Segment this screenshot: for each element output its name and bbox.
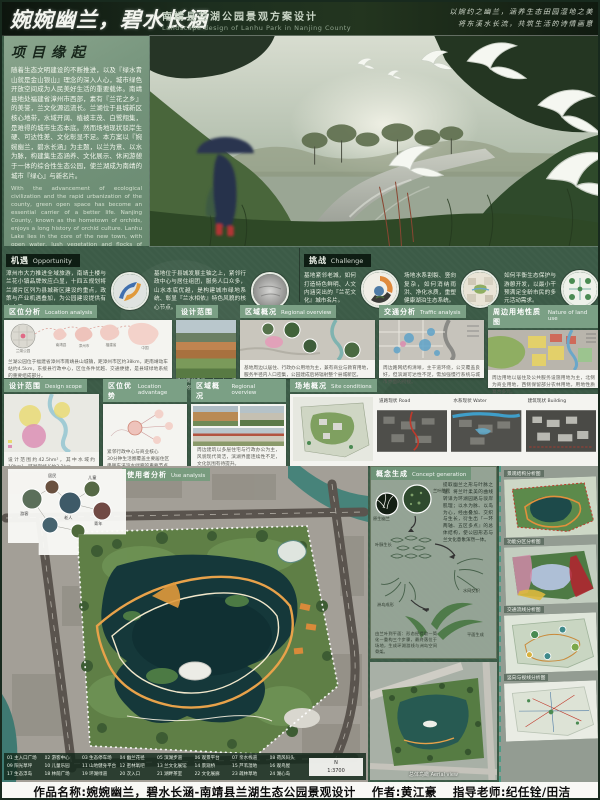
panel-header-scope: 设计范围 bbox=[176, 305, 218, 318]
legend-item: 20 次入口 bbox=[120, 771, 156, 779]
traffic-map bbox=[379, 320, 484, 360]
southeast-plaza bbox=[284, 708, 320, 728]
master-plan-legend: 01 主入口广场 02 游客中心 03 生态停车场 04 幽兰花径 05 滨湖步… bbox=[4, 753, 366, 780]
landuse-map bbox=[488, 330, 599, 370]
legend-item: 05 滨湖步道 bbox=[157, 755, 193, 763]
header-en: Site conditions bbox=[331, 384, 372, 390]
concept-header: 概念生成 Concept generation bbox=[371, 467, 471, 480]
site-plan-green bbox=[293, 397, 373, 461]
panel-header-regional2: 区域概况 Regional overview bbox=[191, 379, 286, 402]
concept-generation-panel: 概念生成 Concept generation bbox=[370, 466, 497, 659]
challenge-label-cn: 挑战 bbox=[309, 256, 327, 265]
traffic-map-panel: 周边路网结构清晰，主干道环绕，公交覆盖良好，但滨湖可达性不足，需加强慢行系统与城… bbox=[379, 320, 484, 378]
header-en: Nature of land use bbox=[548, 310, 594, 322]
concept-note: 由兰叶到平面：形态经提取—简化—重构三个步骤，最终落位于场地，生成环湖游线与洲岛… bbox=[375, 631, 437, 655]
advantage-diagram bbox=[105, 406, 185, 446]
legend-item: 22 文化展廊 bbox=[195, 771, 231, 779]
site-map-building-img bbox=[526, 405, 596, 457]
use-analysis-cn: 使用者分析 bbox=[127, 470, 167, 480]
header-cn: 交通分析 bbox=[384, 307, 416, 317]
origin-paragraph-english: With the advancement of ecological civil… bbox=[11, 186, 142, 246]
panel-location-advantage: 区位优势 Location advantage 紧邻行政中心与商业核心 30分钟… bbox=[103, 379, 187, 476]
photo-plaza bbox=[193, 428, 284, 446]
svg-text:水网交织: 水网交织 bbox=[463, 587, 480, 594]
scale-value: 1:3700 bbox=[311, 767, 361, 775]
opportunity-label-cn: 机遇 bbox=[11, 256, 29, 265]
motto-line-1: 以婉约之幽兰，涵养生态田园湿地之美 bbox=[450, 7, 595, 19]
legend-item: 03 生态停车场 bbox=[82, 755, 118, 763]
aerial-render-panel: 总体鸟瞰 Aerial view bbox=[370, 662, 497, 780]
svg-text:居民: 居民 bbox=[48, 473, 56, 479]
regional-map-panel: 基地周边以居住、行政办公用地为主，兼有商业与教育用地，服务半径内人口密集，公园建… bbox=[240, 320, 375, 378]
panel-site-conditions: 场地概况 Site conditions 道路现状 Road 水系现状 W bbox=[290, 379, 599, 466]
node-lanhu: 兰湖公园 bbox=[16, 348, 31, 353]
advantage-line-1: 紧邻行政中心与商业核心 bbox=[105, 450, 185, 457]
poster-motto: 以婉约之幽兰，涵养生态田园湿地之美 将东溪水长流，共筑生活的诗情画意 bbox=[450, 7, 595, 31]
challenge-icon-water bbox=[461, 270, 499, 308]
concept-header-en: Concept generation bbox=[412, 472, 466, 478]
challenge-icon-ecology bbox=[561, 270, 599, 308]
plan-zoning-map bbox=[504, 544, 598, 605]
scope-photo bbox=[176, 320, 236, 378]
legend-item: 01 主入口广场 bbox=[7, 755, 43, 763]
render-caption-en: Aerial view bbox=[431, 772, 458, 778]
panel-header-traffic: 交通分析 Traffic analysis bbox=[379, 305, 466, 318]
svg-text:平面生成: 平面生成 bbox=[467, 631, 484, 638]
svg-text:青年: 青年 bbox=[94, 520, 102, 527]
svg-text:中国: 中国 bbox=[141, 345, 149, 350]
north-pond bbox=[277, 540, 306, 562]
poster-footer: 作品名称:婉婉幽兰，碧水长涵-南靖县兰湖生态公园景观设计 作者:黄江豪 指导老师… bbox=[2, 782, 600, 800]
legend-item: 04 幽兰花径 bbox=[120, 755, 156, 763]
subtitle-english: Landscape design of Lanhu Park in Nanjin… bbox=[162, 24, 351, 32]
site-map-water: 水系现状 Water bbox=[451, 397, 521, 463]
panel-header-site: 场地概况 Site conditions bbox=[290, 379, 377, 392]
leaf-vein-mesh bbox=[391, 536, 431, 558]
svg-text:洲岛成形: 洲岛成形 bbox=[377, 601, 395, 608]
plan-circulation-title: 交通流线分析图 bbox=[504, 606, 544, 613]
challenge-item-1: 基地紧邻老城，如何打造特色鲜明、人文内涵突出的『兰花文化』城市名片。 bbox=[304, 272, 356, 306]
legend-item: 24 湖心岛 bbox=[270, 771, 306, 779]
legend-item: 07 亲水栈道 bbox=[232, 755, 268, 763]
header-cn: 区位分析 bbox=[9, 307, 41, 317]
svg-text:南靖县: 南靖县 bbox=[56, 342, 67, 347]
design-poster: 婉婉幽兰，碧水长涵 南靖县兰湖公园景观方案设计 Landscape design… bbox=[0, 0, 600, 800]
use-analysis-en: Use analysis bbox=[171, 473, 205, 479]
site-conditions-body: 道路现状 Road 水系现状 Water 建筑现状 Building bbox=[290, 394, 599, 466]
north-indicator: N bbox=[311, 759, 361, 767]
plan-structure-map bbox=[504, 476, 598, 537]
analysis-plan-column: 景观结构分析图 功能分区分析图 交通流线分析图 bbox=[499, 466, 600, 782]
legend-item: 18 林荫广场 bbox=[45, 771, 81, 779]
svg-text:老人: 老人 bbox=[64, 514, 73, 520]
project-origin-panel: 项目缘起 随着生态文明建设的不断推进，以及『绿水青山就是金山银山』理念的深入人心… bbox=[4, 36, 149, 246]
advantage-line-2: 30分钟生活圈覆盖主要居住区 bbox=[105, 457, 185, 464]
legend-item: 12 密林氧吧 bbox=[120, 763, 156, 771]
footer-work-title: 作品名称:婉婉幽兰，碧水长涵-南靖县兰湖生态公园景观设计 bbox=[33, 784, 355, 800]
site-map-building: 建筑现状 Building bbox=[526, 397, 596, 463]
legend-item: 13 兰文化展馆 bbox=[157, 763, 193, 771]
master-plan-aerial: 使用者分析 Use analysis 游客居民 老人儿童青 bbox=[2, 466, 368, 782]
legend-item: 16 观鸟屋 bbox=[270, 763, 306, 771]
legend-item: 09 阳光草坪 bbox=[7, 763, 43, 771]
regional-map bbox=[240, 320, 375, 360]
poster-subtitle: 南靖县兰湖公园景观方案设计 Landscape design of Lanhu … bbox=[162, 8, 351, 32]
plan-structure-title: 景观结构分析图 bbox=[504, 470, 544, 477]
hero-scene bbox=[150, 36, 600, 246]
footer-advisor: 指导老师:纪任铨/田洁 bbox=[453, 784, 571, 800]
plan-structure: 景观结构分析图 bbox=[504, 470, 597, 536]
scale-box: N 1:3700 bbox=[309, 758, 363, 776]
site-map-road-title: 道路现状 Road bbox=[377, 397, 447, 405]
header-en: Regional overview bbox=[281, 310, 331, 316]
svg-text:儿童: 儿童 bbox=[88, 474, 96, 481]
header-cn: 区位优势 bbox=[108, 381, 134, 401]
header-cn: 周边用地性质图 bbox=[493, 307, 544, 327]
panel-location-analysis: 区位分析 Location analysis 兰湖公园 南靖县 漳州市 福建省 … bbox=[4, 305, 172, 378]
plan-sightlines-map bbox=[504, 680, 598, 741]
header-en: Regional overview bbox=[231, 384, 281, 396]
panel-header-scope2: 设计范围 Design scope bbox=[4, 379, 87, 392]
opportunity-label-en: Opportunity bbox=[33, 257, 72, 265]
challenge-section: 挑战 Challenge 基地紧邻老城，如何打造特色鲜明、人文内涵突出的『兰花文… bbox=[304, 248, 599, 304]
svg-text:福建省: 福建省 bbox=[106, 342, 117, 347]
opportunity-section: 机遇 Opportunity 漳州市大力推进全域旅游，南靖土楼与兰花小镇品牌效应… bbox=[6, 248, 296, 304]
header-cn: 设计范围 bbox=[9, 381, 41, 391]
footer-author: 作者:黄江豪 bbox=[372, 784, 437, 800]
svg-text:原生幽兰: 原生幽兰 bbox=[373, 515, 390, 522]
plan-zoning: 功能分区分析图 bbox=[504, 538, 597, 604]
site-map-road: 道路现状 Road bbox=[377, 397, 447, 463]
opportunity-label: 机遇 Opportunity bbox=[6, 254, 80, 267]
header-en: Location advantage bbox=[138, 384, 182, 396]
root-sketch bbox=[381, 578, 415, 602]
origin-paragraph-chinese: 随着生态文明建设的不断推进，以及『绿水青山就是金山银山』理念的深入人心，城市绿色… bbox=[11, 66, 142, 181]
challenge-item-2: 场地水系割裂、竖向复杂，如何消纳雨洪、净化水质，重塑健康湖泊生态系统。 bbox=[404, 272, 456, 306]
location-map-diagram: 兰湖公园 南靖县 漳州市 福建省 中国 bbox=[4, 320, 172, 354]
panel-header-regional: 区域概况 Regional overview bbox=[240, 305, 336, 318]
concept-header-cn: 概念生成 bbox=[376, 469, 408, 479]
panel-design-scope-map: 设计范围 Design scope 设计范围约42.5hm²，其中水域约18hm… bbox=[4, 379, 99, 466]
header-en: Design scope bbox=[45, 384, 82, 390]
legend-item: 14 景观桥 bbox=[195, 763, 231, 771]
svg-text:叶脉生长: 叶脉生长 bbox=[375, 541, 393, 548]
motto-line-2: 将东溪水长流，共筑生活的诗情画意 bbox=[450, 19, 595, 31]
panel-header-advantage: 区位优势 Location advantage bbox=[103, 379, 187, 402]
legend-item: 10 儿童乐园 bbox=[45, 763, 81, 771]
origin-heading: 项目缘起 bbox=[11, 42, 142, 62]
concept-caption: 提取幽兰之形与叶脉之理，将兰叶柔美的曲线转译为环湖园路与驳岸肌理；以水为脉、以岛… bbox=[443, 483, 493, 545]
challenge-label: 挑战 Challenge bbox=[304, 254, 371, 267]
site-map-building-title: 建筑现状 Building bbox=[526, 397, 596, 405]
legend-item: 11 山地健身平台 bbox=[82, 763, 118, 771]
header-cn: 场地概况 bbox=[295, 381, 327, 391]
poster-header: 婉婉幽兰，碧水长涵 南靖县兰湖公园景观方案设计 Landscape design… bbox=[2, 2, 600, 36]
plan-circulation-map bbox=[504, 612, 598, 673]
challenge-item-3: 如何平衡生态保护与游憩开发，以最小干预满足全龄市民的多元活动需求。 bbox=[504, 272, 556, 306]
site-map-road-img bbox=[377, 405, 447, 457]
lake-center-building bbox=[179, 662, 211, 680]
legend-item: 21 湖畔茶室 bbox=[157, 771, 193, 779]
render-caption: 总体鸟瞰 Aerial view bbox=[370, 771, 497, 778]
legend-item: 19 环湖绿道 bbox=[82, 771, 118, 779]
challenge-label-en: Challenge bbox=[331, 257, 364, 265]
hero-rendering-image bbox=[150, 36, 600, 246]
photo-buildings-1 bbox=[193, 406, 238, 426]
header-en: Traffic analysis bbox=[420, 310, 461, 316]
panel-regional-photos: 区域概况 Regional overview 周边建筑以多层住宅与行政办公为主，… bbox=[191, 379, 286, 476]
header-cn: 区域概况 bbox=[196, 381, 227, 401]
legend-item: 02 游客中心 bbox=[45, 755, 81, 763]
legend-item: 17 生态浮岛 bbox=[7, 771, 43, 779]
panel-header-landuse: 周边用地性质图 Nature of land use bbox=[488, 305, 599, 328]
use-analysis-label: 使用者分析 Use analysis bbox=[122, 468, 210, 481]
plan-sightlines: 竖向与视线分析图 bbox=[504, 674, 597, 740]
legend-item: 08 荷风码头 bbox=[270, 755, 306, 763]
plan-zoning-title: 功能分区分析图 bbox=[504, 538, 544, 545]
scope-map-panel: 设计范围约42.5hm²，其中水域约18hm²，环湖岸线长约3.2km。 bbox=[4, 394, 99, 466]
legend-item: 23 疏林草地 bbox=[232, 771, 268, 779]
plan-circulation: 交通流线分析图 bbox=[504, 606, 597, 672]
legend-items: 01 主入口广场 02 游客中心 03 生态停车场 04 幽兰花径 05 滨湖步… bbox=[7, 755, 305, 779]
panel-header-location: 区位分析 Location analysis bbox=[4, 305, 97, 318]
legend-item: 06 观景平台 bbox=[195, 755, 231, 763]
header-en: Location analysis bbox=[45, 310, 92, 316]
svg-text:漳州市: 漳州市 bbox=[79, 343, 90, 348]
challenge-icon-culture bbox=[361, 270, 399, 308]
header-cn: 设计范围 bbox=[181, 307, 213, 317]
plan-sightlines-title: 竖向与视线分析图 bbox=[504, 674, 548, 681]
aerial-render bbox=[370, 662, 497, 780]
band-divider bbox=[299, 248, 300, 302]
header-cn: 区域概况 bbox=[245, 307, 277, 317]
legend-item: 15 芦苇湿地 bbox=[232, 763, 268, 771]
panel-regional-overview: 区域概况 Regional overview 基地周边以居住、行政办公用地为主，… bbox=[240, 305, 375, 378]
site-map-water-img bbox=[451, 405, 521, 457]
location-map-panel: 兰湖公园 南靖县 漳州市 福建省 中国 兰湖公园位于福建省漳州市南靖县山城镇，距… bbox=[4, 320, 172, 378]
panel-traffic-analysis: 交通分析 Traffic analysis 周边路网结构清晰，主干道环绕，公交覆… bbox=[379, 305, 484, 378]
photo-buildings-2 bbox=[240, 406, 285, 426]
render-caption-cn: 总体鸟瞰 bbox=[409, 772, 429, 778]
scope-map bbox=[4, 394, 99, 452]
site-map-water-title: 水系现状 Water bbox=[451, 397, 521, 405]
svg-text:游客: 游客 bbox=[20, 510, 29, 517]
branch-sketch bbox=[455, 559, 484, 590]
subtitle-chinese: 南靖县兰湖公园景观方案设计 bbox=[162, 8, 351, 23]
panel-land-use: 周边用地性质图 Nature of land use 周边用地以居住及公共服务设… bbox=[488, 305, 599, 388]
